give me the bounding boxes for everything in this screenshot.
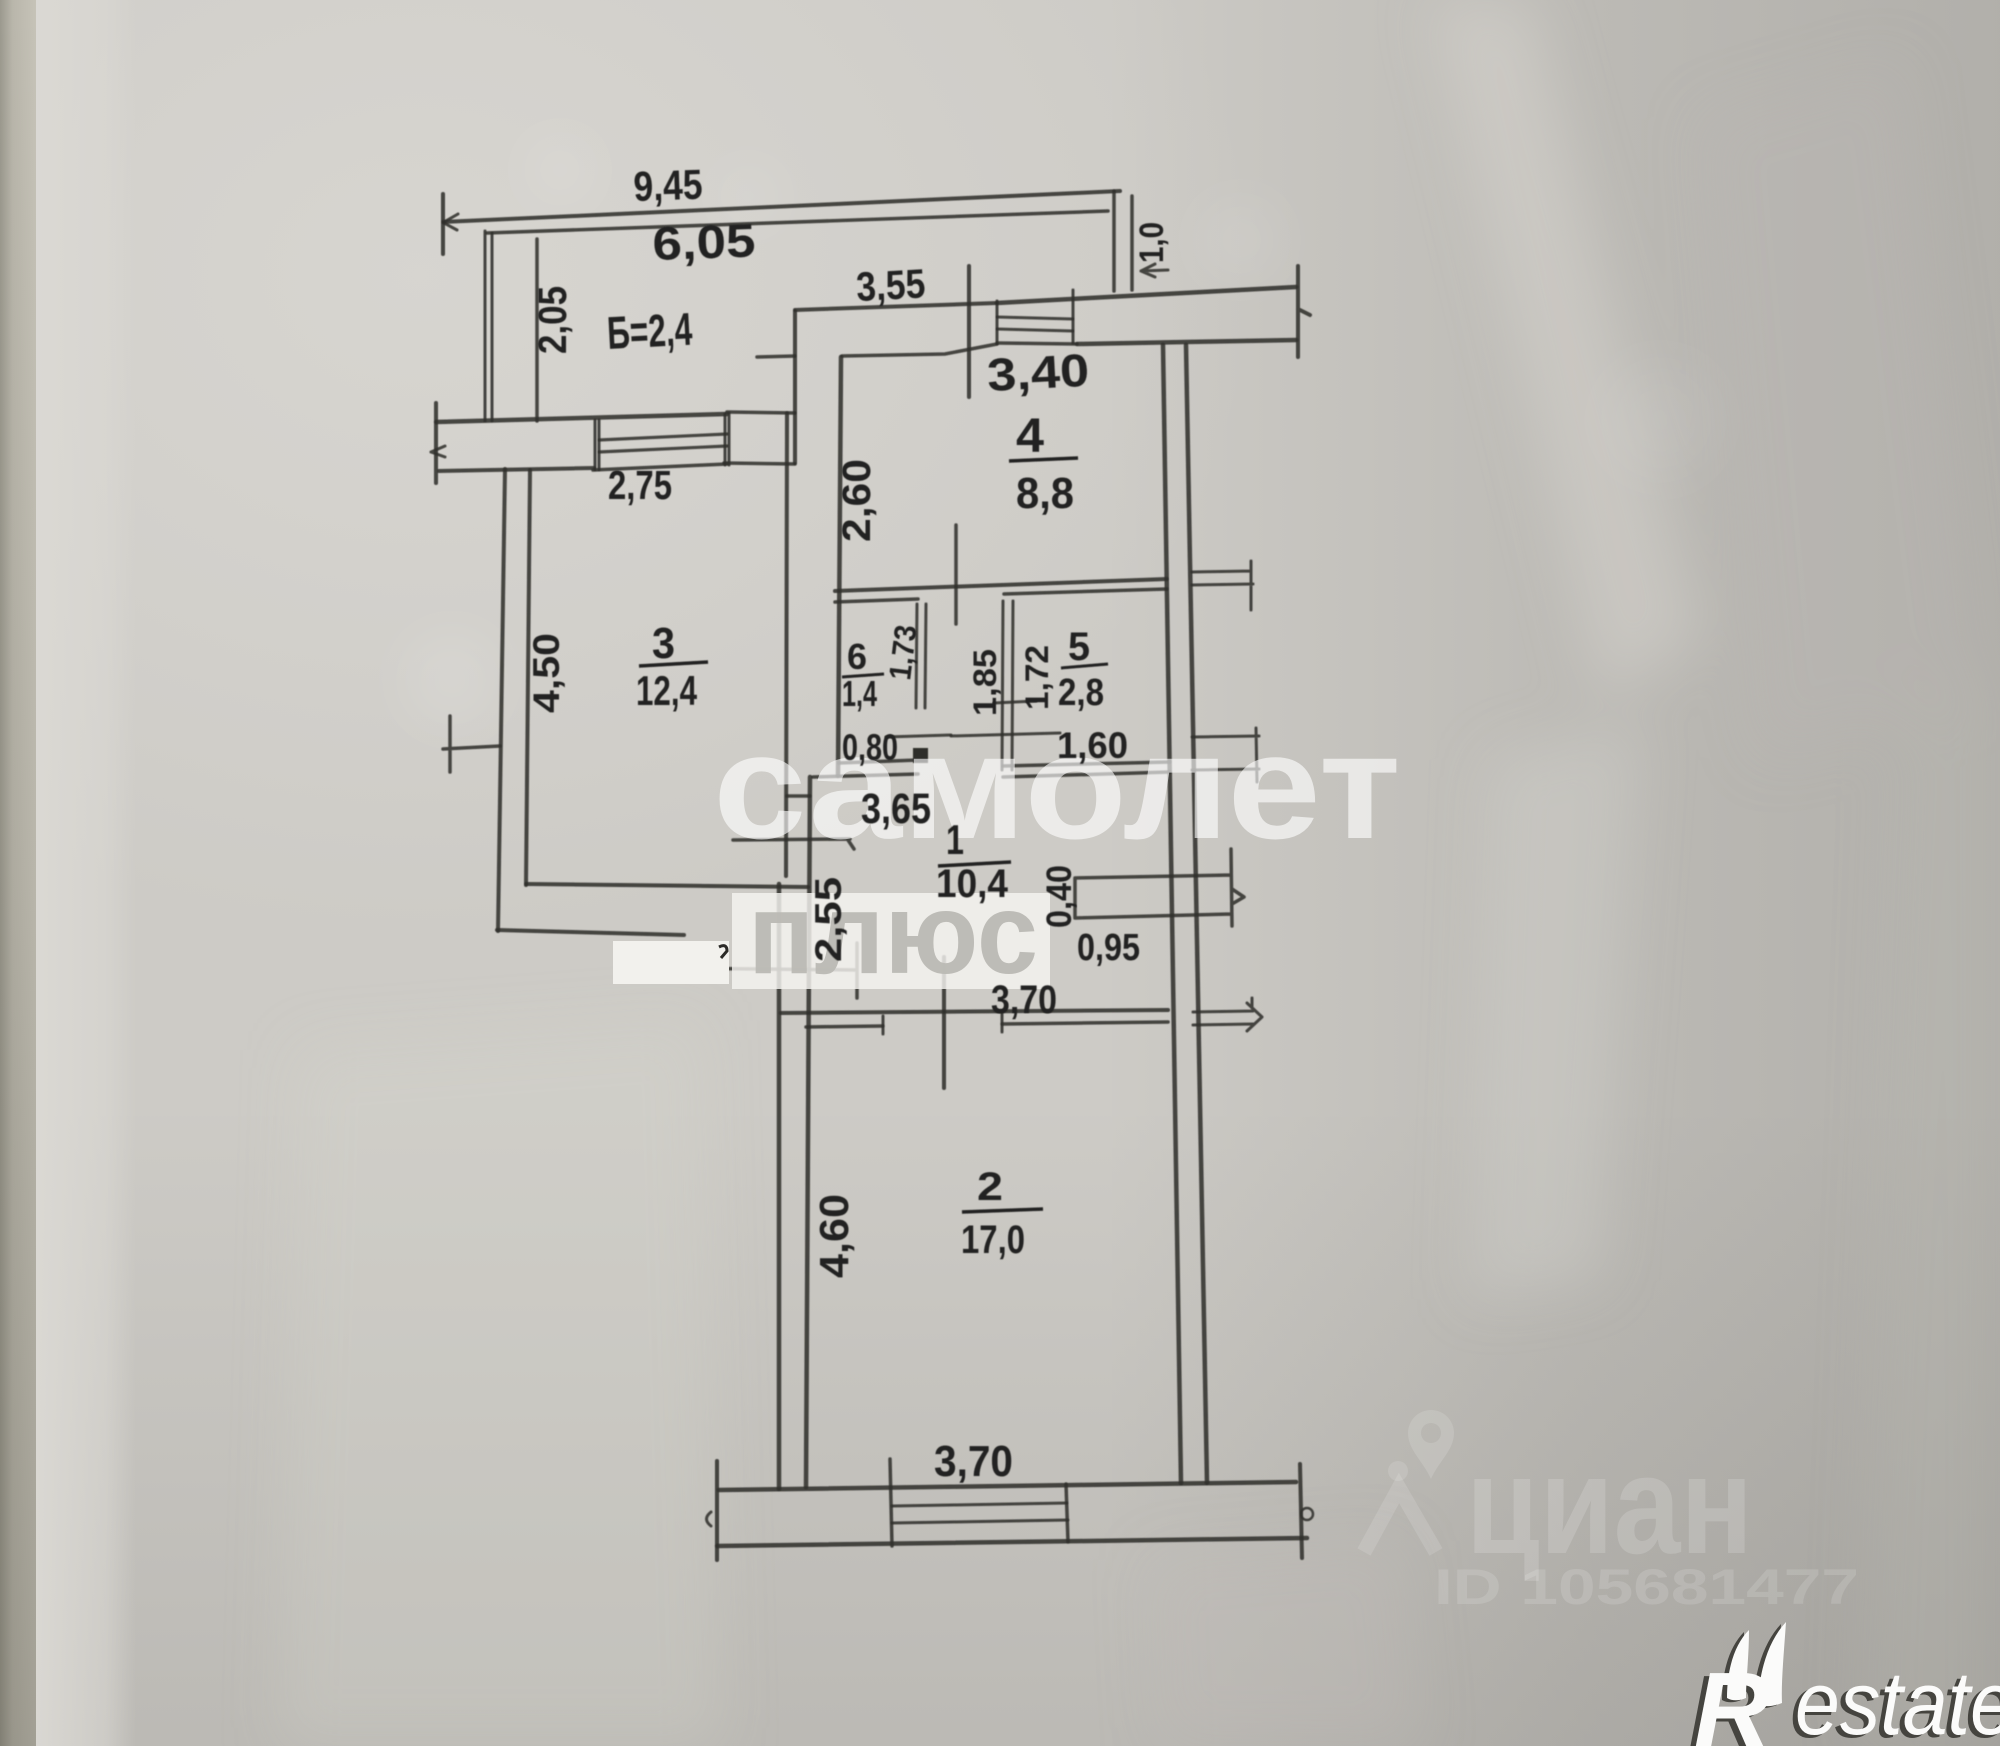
svg-text:4,60: 4,60 [811,1194,857,1278]
svg-text:3,70: 3,70 [991,978,1057,1022]
svg-text:2,55: 2,55 [808,877,849,962]
svg-text:10,4: 10,4 [936,862,1009,906]
svg-text:2,75: 2,75 [608,462,672,508]
svg-text:1,72: 1,72 [1019,645,1055,710]
svg-text:1: 1 [946,816,964,863]
svg-text:3,70: 3,70 [934,1437,1013,1486]
svg-text:estate: estate [1795,1654,2000,1746]
svg-text:6,05: 6,05 [651,213,756,270]
svg-text:4,50: 4,50 [526,633,567,713]
svg-text:2,05: 2,05 [531,286,575,354]
svg-text:1,73: 1,73 [882,623,923,682]
svg-text:9,45: 9,45 [633,161,704,210]
svg-text:1,0: 1,0 [1133,222,1171,263]
svg-text:2,60: 2,60 [835,459,879,542]
svg-text:0,40: 0,40 [1040,865,1079,928]
svg-text:2,8: 2,8 [1058,672,1104,714]
svg-text:1,4: 1,4 [842,673,877,714]
svg-text:3: 3 [652,619,675,668]
svg-text:1,60: 1,60 [1057,725,1128,766]
svg-text:3,40: 3,40 [986,344,1091,401]
svg-text:2: 2 [977,1165,1003,1209]
svg-text:3,65: 3,65 [861,785,931,833]
svg-text:12,4: 12,4 [636,667,697,714]
svg-text:Б=2,4: Б=2,4 [606,303,694,359]
svg-text:8,8: 8,8 [1016,469,1074,518]
svg-text:0,95: 0,95 [1077,927,1140,969]
svg-text:5: 5 [1068,625,1090,669]
svg-text:3,55: 3,55 [855,260,926,310]
svg-text:0,80: 0,80 [842,727,898,768]
svg-text:6: 6 [847,636,867,677]
svg-text:17,0: 17,0 [961,1218,1025,1262]
svg-text:4: 4 [1016,410,1044,463]
svg-text:1,85: 1,85 [967,649,1003,716]
svg-text:ID 105681477: ID 105681477 [1434,1559,1859,1615]
